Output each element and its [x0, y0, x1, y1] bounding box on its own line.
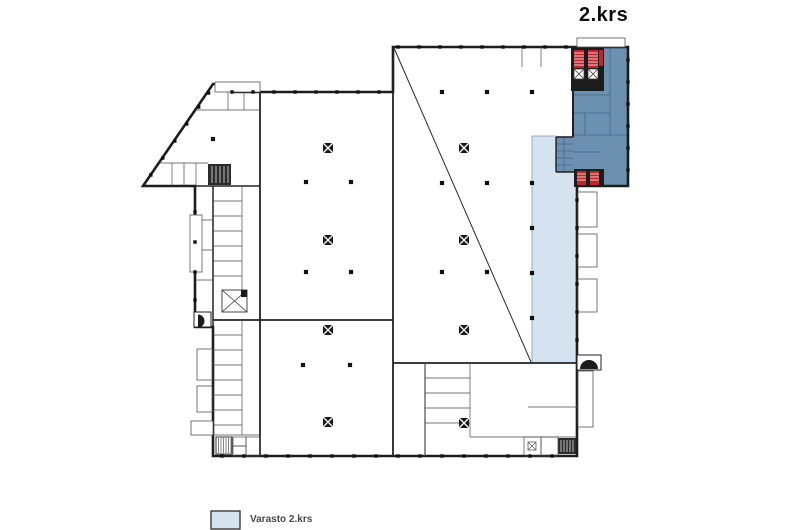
braced-column-icons	[323, 143, 469, 428]
diagonal-line	[394, 48, 531, 362]
stairs-icon-wedge	[208, 164, 231, 185]
stairs-icon-mid-right	[574, 169, 604, 187]
stairs-icon-bottom-right	[524, 437, 576, 456]
elevator-icon-left	[194, 312, 211, 328]
stairs-icon-bottom-left	[216, 437, 260, 456]
floor-plan	[0, 0, 786, 524]
partition-lines	[160, 47, 577, 456]
legend-swatch	[210, 510, 241, 530]
stairs-icon-top-right	[571, 48, 604, 91]
spiral-stair-icon-right	[577, 355, 601, 370]
interior-walls	[195, 47, 577, 456]
legend: Varasto 2.krs	[210, 510, 312, 530]
legend-label: Varasto 2.krs	[250, 514, 312, 525]
stairs-icon-left-mid	[222, 290, 247, 312]
